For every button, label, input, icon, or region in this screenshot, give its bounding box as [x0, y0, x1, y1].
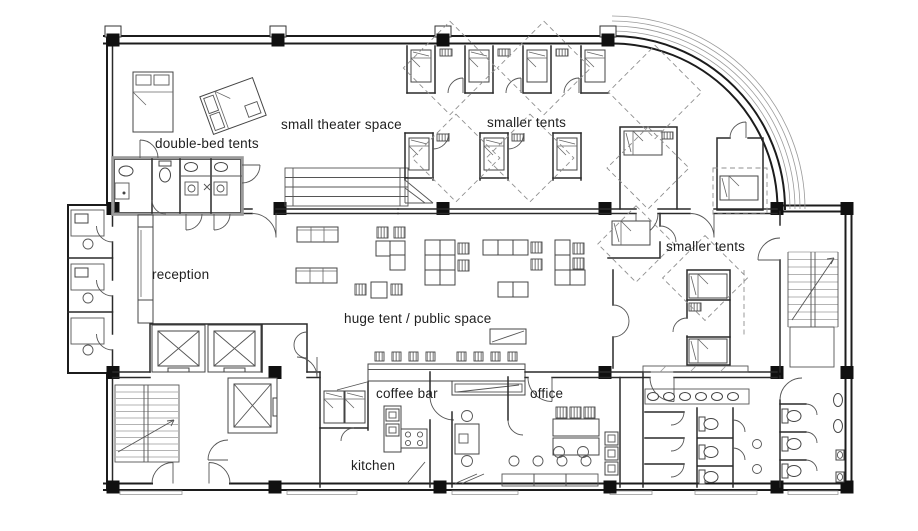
label-double-bed-tents: double-bed tents [155, 136, 259, 151]
label-smaller-tents-top: smaller tents [487, 115, 566, 130]
coffee-bar-counter [368, 364, 525, 381]
double-bed-tents-room [133, 72, 266, 134]
label-kitchen: kitchen [351, 458, 395, 473]
label-reception: reception [152, 267, 209, 282]
bathroom-bottom-right [780, 376, 844, 487]
elevator-bank [150, 324, 307, 433]
theater-benches [285, 168, 408, 206]
bathroom-bottom-center [643, 372, 777, 487]
floor-plan-drawing: double-bed tents small theater space sma… [0, 0, 918, 531]
floor-plan-page: double-bed tents small theater space sma… [0, 0, 918, 531]
tent-room-d [663, 236, 748, 365]
dashed-tent-canopy [608, 45, 701, 138]
label-coffee-bar: coffee bar [376, 386, 438, 401]
left-annex-offices [68, 210, 113, 355]
stairwell-right [758, 212, 838, 373]
window-sills [120, 491, 838, 495]
label-smaller-tents-right: smaller tents [666, 239, 745, 254]
label-office: office [530, 386, 563, 401]
tent-room-b [713, 122, 767, 214]
curved-glass-wall [612, 16, 805, 209]
bathroom-top-left [113, 140, 260, 230]
reception-area [138, 215, 153, 323]
label-huge-tent-public-space: huge tent / public space [344, 311, 491, 326]
tent-room-a [607, 127, 689, 209]
public-space-furniture [296, 227, 585, 361]
hall-right-wall [613, 270, 748, 372]
stairs-bottom-left [113, 372, 320, 484]
label-small-theater-space: small theater space [281, 117, 402, 132]
tent-room-c [598, 206, 676, 282]
